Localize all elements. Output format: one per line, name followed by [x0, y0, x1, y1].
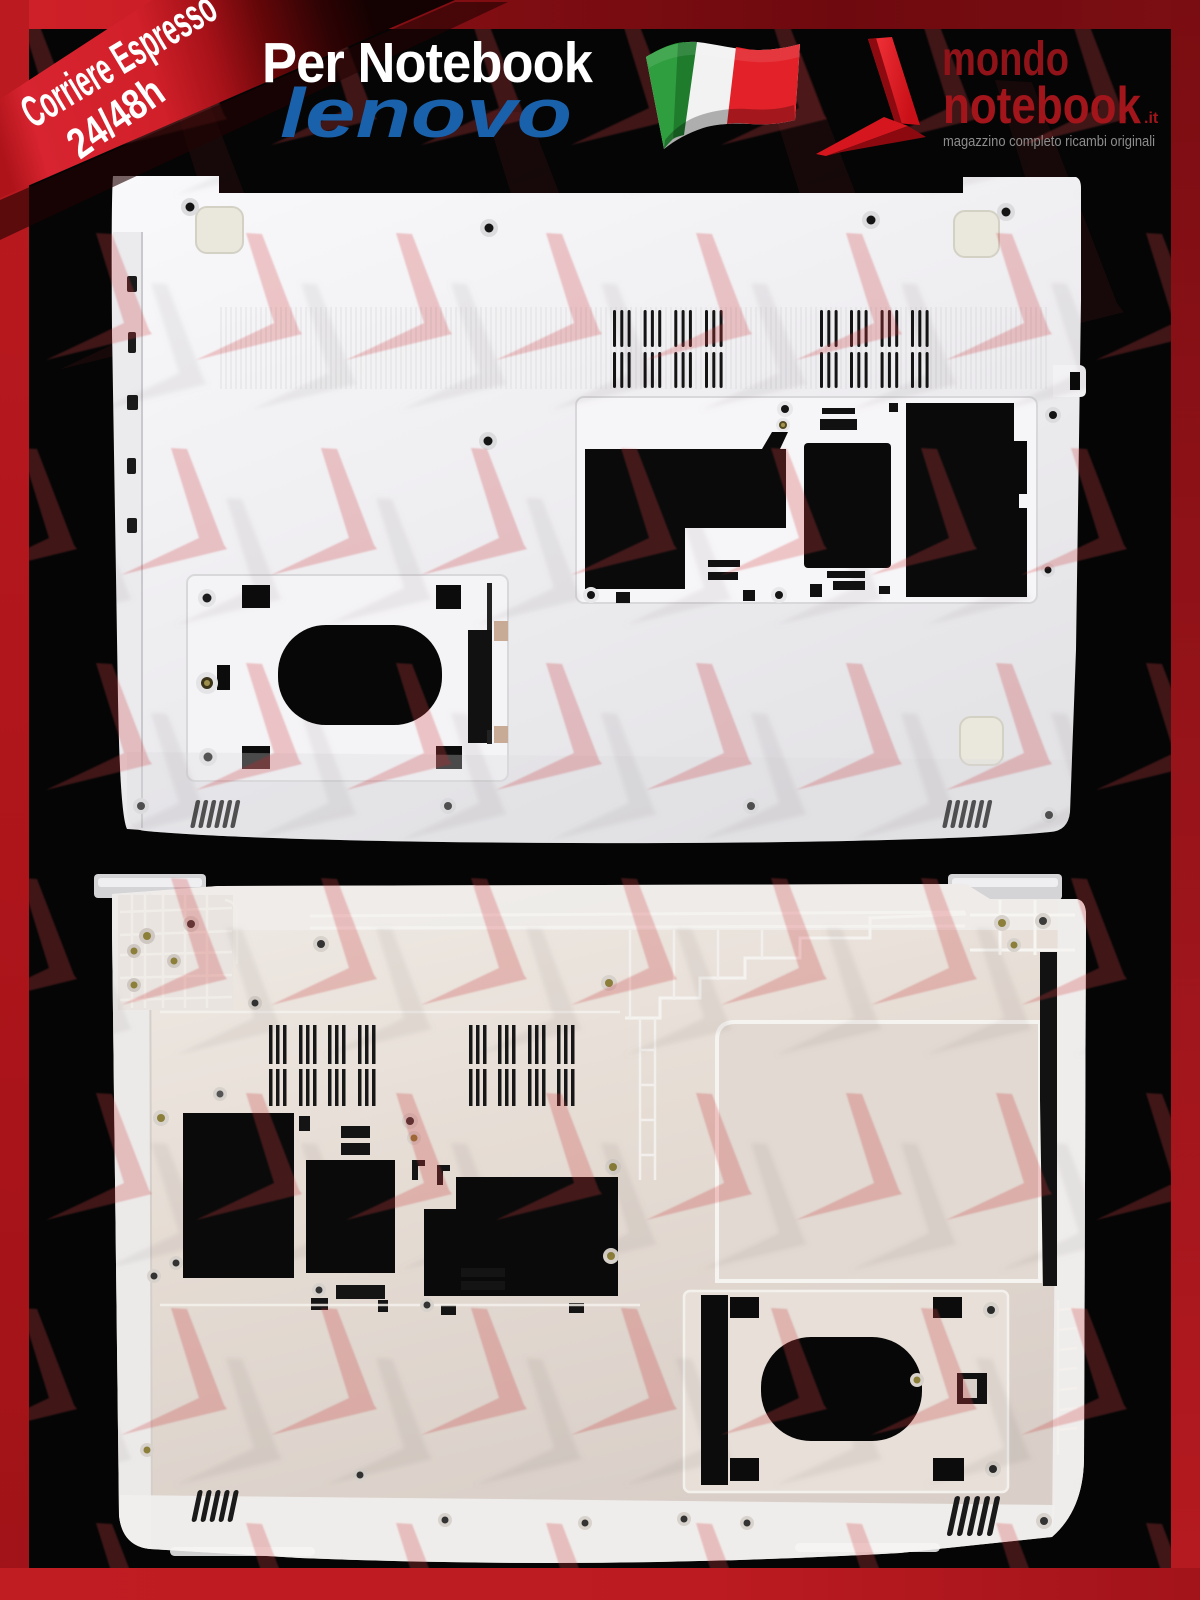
svg-text:magazzino completo ricambi ori: magazzino completo ricambi originali: [943, 133, 1155, 150]
svg-text:.it: .it: [1144, 110, 1159, 127]
svg-text:lenovo: lenovo: [280, 74, 572, 152]
svg-text:notebook: notebook: [943, 77, 1141, 135]
